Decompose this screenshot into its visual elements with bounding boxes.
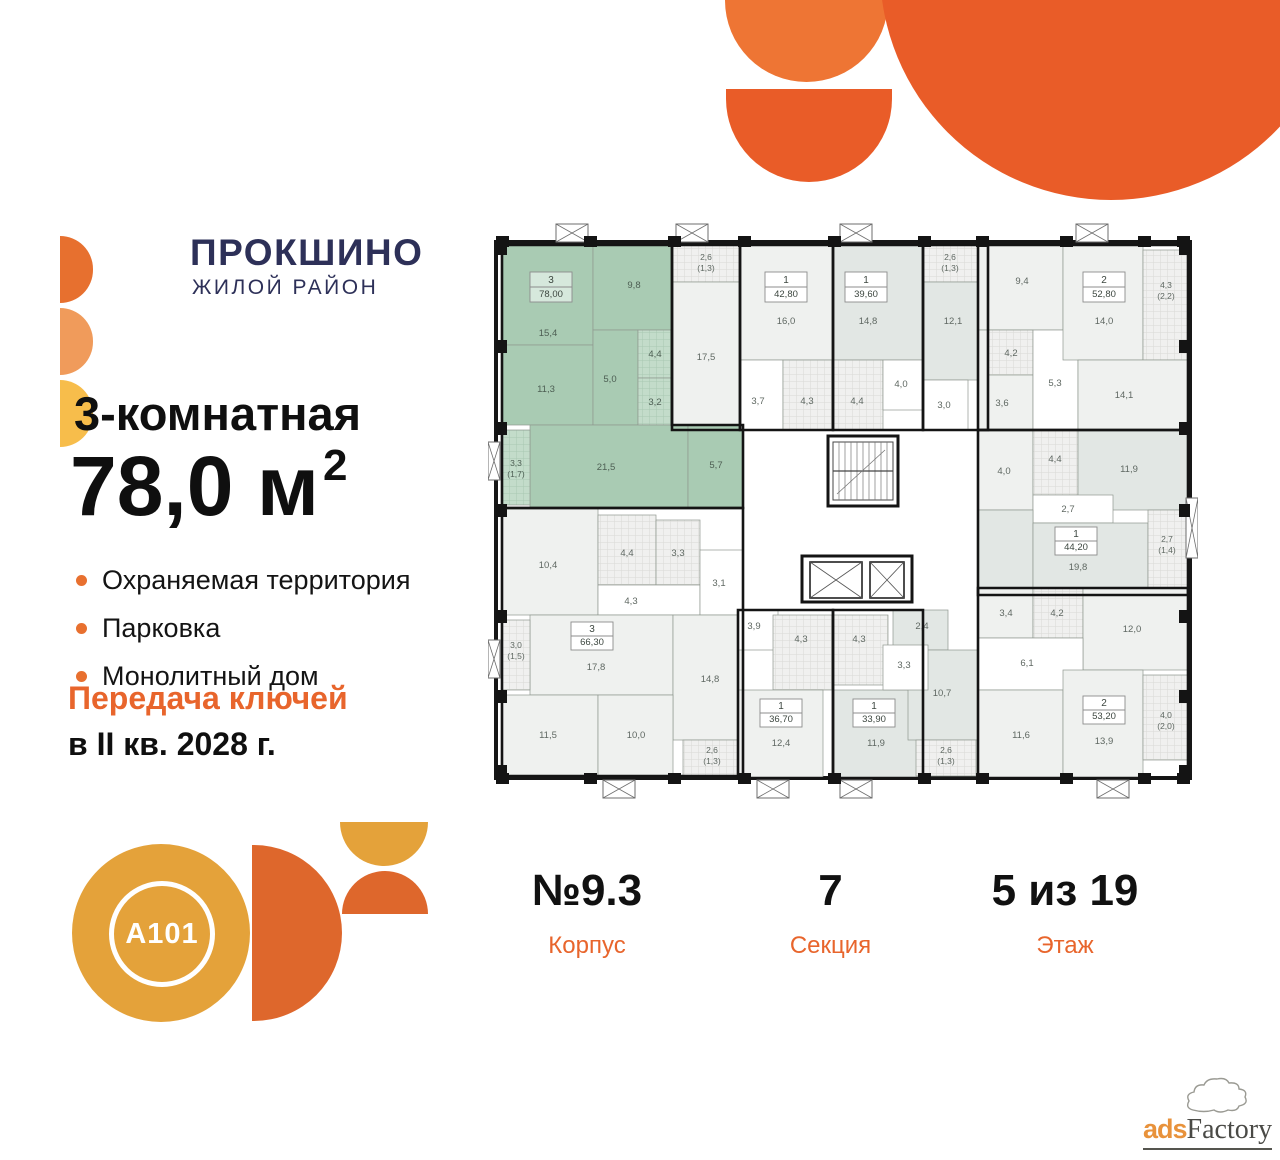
room-area-label: 3,9 xyxy=(747,621,760,632)
room-g-5-7: 5,7 xyxy=(688,425,743,508)
wall-pier xyxy=(496,340,507,353)
apartment-label: 142,80 xyxy=(765,272,807,302)
wall-pier xyxy=(1179,242,1190,255)
room-area-label: 14,8 xyxy=(701,674,720,685)
svg-text:(1,3): (1,3) xyxy=(941,263,959,273)
room-area-label: 10,0 xyxy=(627,730,646,741)
room-g-balc-3-3: 3,3(1,7) xyxy=(502,430,530,505)
wall-pier xyxy=(668,773,681,784)
room-c-balc-2-6: 2,6(1,3) xyxy=(923,245,978,282)
room-e-kit xyxy=(978,510,1033,595)
bullet-dot-icon xyxy=(76,623,87,634)
listing-flyer: ПРОКШИНΟ ЖИЛОЙ РАЙОН 3-комнатная 78,0 м2… xyxy=(0,0,1280,1160)
floor-plan-svg: 15,49,811,35,04,43,221,55,73,3(1,7)2,6(1… xyxy=(488,220,1198,804)
apartment-label: 133,90 xyxy=(853,699,895,727)
room-area-label: 3,0 xyxy=(510,640,522,650)
french-balcony-icon xyxy=(1097,780,1129,798)
apartment-type-title: 3-комнатная xyxy=(74,386,361,441)
room-a-3-7: 3,7 xyxy=(740,360,783,430)
room-e-4-4: 4,4 xyxy=(1033,430,1078,495)
deco-semicircle-medium xyxy=(726,89,892,182)
room-area-label: 4,4 xyxy=(620,548,633,559)
room-area-label: 10,7 xyxy=(933,688,952,699)
area-superscript: 2 xyxy=(323,441,347,490)
room-area-label: 4,4 xyxy=(1048,454,1061,465)
svg-text:(1,7): (1,7) xyxy=(507,469,525,479)
room-area-label: 11,9 xyxy=(1120,464,1138,475)
brand-subtitle: ЖИЛОЙ РАЙОН xyxy=(192,276,378,300)
wall-pier xyxy=(918,236,931,247)
a101-logo: A101 xyxy=(72,844,250,1022)
svg-text:52,80: 52,80 xyxy=(1092,289,1116,300)
room-area-label: 2,6 xyxy=(706,745,718,755)
room-area-label: 5,0 xyxy=(603,374,616,385)
room-f-3-1: 3,1 xyxy=(700,550,743,615)
wall-pier xyxy=(496,422,507,435)
room-area-label: 12,4 xyxy=(772,738,791,749)
room-area-label: 3,0 xyxy=(937,400,950,411)
apartment-label: 139,60 xyxy=(845,272,887,302)
svg-text:66,30: 66,30 xyxy=(580,637,604,648)
wall-pier xyxy=(738,236,751,247)
staircase xyxy=(833,442,893,500)
room-area-label: 21,5 xyxy=(597,462,616,473)
room-f-14-8: 14,8 xyxy=(673,615,743,740)
room-area-label: 4,0 xyxy=(894,379,907,390)
room-area-label: 4,4 xyxy=(850,396,863,407)
svg-text:44,20: 44,20 xyxy=(1064,542,1088,553)
room-area-label: 14,1 xyxy=(1115,390,1134,401)
room-b-4-4: 4,4 xyxy=(833,360,883,430)
apartment-label: 253,20 xyxy=(1083,696,1125,724)
wall-pier xyxy=(496,690,507,703)
room-area-label: 3,3 xyxy=(897,660,910,671)
svg-text:(2,0): (2,0) xyxy=(1157,721,1175,731)
room-area-label: 4,4 xyxy=(648,349,661,360)
wall-pier xyxy=(668,236,681,247)
room-c-3-0: 3,0 xyxy=(923,380,968,430)
room-area-label: 11,3 xyxy=(537,384,555,395)
svg-text:(1,3): (1,3) xyxy=(937,756,955,766)
wall-pier xyxy=(1138,773,1151,784)
room-j-balc-2-6: 2,6(1,3) xyxy=(916,740,976,776)
room-area-label: 4,3 xyxy=(852,634,865,645)
room-area-label: 3,6 xyxy=(995,398,1008,409)
wall-pier xyxy=(1179,422,1190,435)
apartment-label: 378,00 xyxy=(530,272,572,302)
room-area-label: 2,6 xyxy=(940,745,952,755)
room-area-label: 4,2 xyxy=(1004,348,1017,359)
room-f-11-5: 11,5 xyxy=(502,695,598,776)
room-d-14-0: 14,0 xyxy=(1063,245,1143,360)
svg-text:53,20: 53,20 xyxy=(1092,711,1116,722)
svg-text:(1,3): (1,3) xyxy=(703,756,721,766)
room-area-label: 11,6 xyxy=(1012,730,1030,741)
room-area-label: 11,9 xyxy=(867,738,885,749)
elevator xyxy=(870,562,904,598)
room-area-label: 12,0 xyxy=(1123,624,1142,635)
wall-pier xyxy=(1179,610,1190,623)
wall-pier xyxy=(496,610,507,623)
room-area-label: 3,4 xyxy=(999,608,1012,619)
room-area-label: 6,1 xyxy=(1020,658,1033,669)
svg-text:1: 1 xyxy=(778,701,784,712)
wall-pier xyxy=(496,765,507,778)
room-d-4-2: 4,2 xyxy=(988,330,1033,375)
apartment-label: 136,70 xyxy=(760,699,802,727)
smoke-cloud-icon xyxy=(1181,1076,1251,1114)
room-area-label: 4,3 xyxy=(1160,280,1172,290)
section-info: 7 Секция xyxy=(748,866,913,960)
svg-text:78,00: 78,00 xyxy=(539,289,563,300)
room-area-label: 4,0 xyxy=(997,466,1010,477)
room-area-label: 14,8 xyxy=(859,316,878,327)
floor-label: Этаж xyxy=(955,932,1175,960)
petal-orange-icon xyxy=(60,236,93,303)
petal-light-orange-icon xyxy=(60,308,93,375)
wall-pier xyxy=(496,242,507,255)
svg-text:33,90: 33,90 xyxy=(862,714,886,725)
french-balcony-icon xyxy=(603,780,635,798)
room-k-balc-4-0: 4,0(2,0) xyxy=(1143,675,1188,760)
room-area-label: 11,5 xyxy=(539,730,557,741)
keys-handover-line2: в II кв. 2028 г. xyxy=(68,726,276,763)
floor-plan: 15,49,811,35,04,43,221,55,73,3(1,7)2,6(1… xyxy=(488,220,1198,804)
section-label: Секция xyxy=(748,932,913,960)
wall-pier xyxy=(1179,340,1190,353)
room-area-label: 16,0 xyxy=(777,316,796,327)
feature-label: Охраняемая территория xyxy=(102,565,410,596)
room-area-label: 3,2 xyxy=(648,397,661,408)
room-area-label: 2,6 xyxy=(700,252,712,262)
svg-text:2: 2 xyxy=(1101,698,1107,709)
room-g-11-3: 11,3 xyxy=(502,345,593,425)
building-info: №9.3 Корпус xyxy=(492,866,682,960)
watermark-ads: ads xyxy=(1143,1114,1187,1144)
french-balcony-icon xyxy=(840,780,872,798)
wall-pier xyxy=(976,236,989,247)
french-balcony-icon xyxy=(488,442,500,480)
room-a-16-0: 16,0 xyxy=(740,245,833,360)
wall-pier xyxy=(828,236,841,247)
room-e-balc-2-7: 2,7(1,4) xyxy=(1148,510,1188,590)
wall-pier xyxy=(584,236,597,247)
room-area-label: 3,7 xyxy=(751,396,764,407)
apartment-label: 366,30 xyxy=(571,622,613,650)
wall-pier xyxy=(1060,773,1073,784)
wall-pier xyxy=(496,504,507,517)
room-t-balc-2-6: 2,6(1,3) xyxy=(672,245,740,282)
brand-name: ПРОКШИНΟ xyxy=(190,232,423,274)
floor-number: 5 из 19 xyxy=(955,866,1175,916)
room-f-4-4: 4,4 xyxy=(598,515,656,585)
wall-pier xyxy=(1060,236,1073,247)
room-area-label: 15,4 xyxy=(539,328,558,339)
area-value: 78,0 м xyxy=(70,439,319,533)
wall-pier xyxy=(976,773,989,784)
a101-ring: A101 xyxy=(109,881,215,987)
floor-info: 5 из 19 Этаж xyxy=(955,866,1175,960)
wall-pier xyxy=(584,773,597,784)
svg-text:1: 1 xyxy=(1073,529,1079,540)
room-area-label: 4,2 xyxy=(1050,608,1063,619)
room-g-21-5: 21,5 xyxy=(530,425,688,508)
a101-halfcircle-icon xyxy=(252,845,342,1021)
watermark-text: adsFactory xyxy=(1143,1114,1272,1150)
room-k-11-6: 11,6 xyxy=(978,690,1063,778)
room-h-4-3: 4,3 xyxy=(773,615,833,690)
room-f-3-3: 3,3 xyxy=(656,520,700,585)
room-d-9-4: 9,4 xyxy=(978,245,1063,330)
wall-pier xyxy=(918,773,931,784)
svg-text:1: 1 xyxy=(783,275,789,286)
feature-item: Парковка xyxy=(76,604,410,652)
svg-text:(2,2): (2,2) xyxy=(1157,291,1175,301)
room-area-label: 4,0 xyxy=(1160,710,1172,720)
a101-yellow-semicircle-icon xyxy=(340,822,428,866)
room-j-2-4: 2,4 xyxy=(893,610,948,650)
room-area-label: 19,8 xyxy=(1069,562,1088,573)
bullet-dot-icon xyxy=(76,575,87,586)
room-area-label: 3,3 xyxy=(671,548,684,559)
room-area-label: 5,7 xyxy=(709,460,722,471)
room-area-label: 3,1 xyxy=(712,578,725,589)
watermark-factory: Factory xyxy=(1187,1114,1273,1145)
room-area-label: 3,3 xyxy=(510,458,522,468)
wall-pier xyxy=(1179,690,1190,703)
building-number: №9.3 xyxy=(492,866,682,916)
room-area-label: 4,3 xyxy=(800,396,813,407)
apartment-label: 252,80 xyxy=(1083,272,1125,302)
room-area-label: 2,7 xyxy=(1161,534,1173,544)
room-f-balc-3-0: 3,0(1,5) xyxy=(502,620,530,690)
room-area-label: 2,6 xyxy=(944,252,956,262)
room-j-3-3: 3,3 xyxy=(883,645,928,690)
room-area-label: 9,8 xyxy=(627,280,640,291)
french-balcony-icon xyxy=(757,780,789,798)
room-b-4-0: 4,0 xyxy=(883,360,923,410)
room-g-3-2: 3,2 xyxy=(638,378,672,425)
wall-pier xyxy=(828,773,841,784)
deco-circle-large xyxy=(880,0,1280,200)
room-f-4-3: 4,3 xyxy=(598,585,700,615)
deco-semicircle-small xyxy=(725,0,888,82)
room-area-label: 17,5 xyxy=(697,352,716,363)
room-f-balc-2-6: 2,6(1,3) xyxy=(683,740,740,776)
french-balcony-icon xyxy=(840,224,872,242)
svg-text:36,70: 36,70 xyxy=(769,714,793,725)
wall-pier xyxy=(1138,236,1151,247)
svg-text:(1,3): (1,3) xyxy=(697,263,715,273)
room-area-label: 17,8 xyxy=(587,662,606,673)
room-k-12-0: 12,0 xyxy=(1083,588,1188,670)
french-balcony-icon xyxy=(556,224,588,242)
french-balcony-icon xyxy=(488,640,500,678)
room-area-label: 2,7 xyxy=(1061,504,1074,515)
svg-text:1: 1 xyxy=(863,275,869,286)
room-area-label: 9,4 xyxy=(1015,276,1028,287)
svg-text:39,60: 39,60 xyxy=(854,289,878,300)
wall-pier xyxy=(1179,504,1190,517)
room-t-17-5: 17,5 xyxy=(672,282,740,425)
room-g-5-0: 5,0 xyxy=(593,330,638,425)
french-balcony-icon xyxy=(1076,224,1108,242)
room-f-10-0: 10,0 xyxy=(598,695,673,776)
wall-pier xyxy=(1179,765,1190,778)
feature-item: Охраняемая территория xyxy=(76,556,410,604)
room-area-label: 4,3 xyxy=(624,596,637,607)
svg-text:(1,5): (1,5) xyxy=(507,651,525,661)
svg-text:3: 3 xyxy=(589,624,595,635)
wall-pier xyxy=(738,773,751,784)
keys-handover-line1: Передача ключей xyxy=(68,680,348,717)
room-area-label: 10,4 xyxy=(539,560,558,571)
room-area-label: 5,3 xyxy=(1048,378,1061,389)
building-label: Корпус xyxy=(492,932,682,960)
feature-list: Охраняемая территория Парковка Монолитны… xyxy=(76,556,410,700)
room-area-label: 13,9 xyxy=(1095,736,1114,747)
room-g-9-8: 9,8 xyxy=(593,245,672,330)
room-e-4-0: 4,0 xyxy=(978,430,1033,510)
svg-text:2: 2 xyxy=(1101,275,1107,286)
room-e-2-7: 2,7 xyxy=(1033,495,1113,523)
room-g-4-4: 4,4 xyxy=(638,330,672,378)
svg-text:42,80: 42,80 xyxy=(774,289,798,300)
section-number: 7 xyxy=(748,866,913,916)
adsfactory-watermark: adsFactory xyxy=(1143,1082,1278,1154)
a101-orange-semicircle-icon xyxy=(342,871,428,914)
room-b-14-8: 14,8 xyxy=(833,245,923,360)
svg-text:1: 1 xyxy=(871,701,877,712)
room-a-4-3: 4,3 xyxy=(783,360,833,430)
feature-label: Парковка xyxy=(102,613,220,644)
apartment-area: 78,0 м2 xyxy=(70,438,343,535)
room-f-10-4: 10,4 xyxy=(502,508,598,615)
elevator xyxy=(810,562,862,598)
room-d-14-1: 14,1 xyxy=(1078,360,1188,430)
room-i-4-3: 4,3 xyxy=(833,615,888,685)
apartment-label: 144,20 xyxy=(1055,527,1097,555)
room-area-label: 12,1 xyxy=(944,316,963,327)
room-area-label: 14,0 xyxy=(1095,316,1114,327)
room-area-label: 4,3 xyxy=(794,634,807,645)
svg-text:(1,4): (1,4) xyxy=(1158,545,1176,555)
svg-text:3: 3 xyxy=(548,275,554,286)
